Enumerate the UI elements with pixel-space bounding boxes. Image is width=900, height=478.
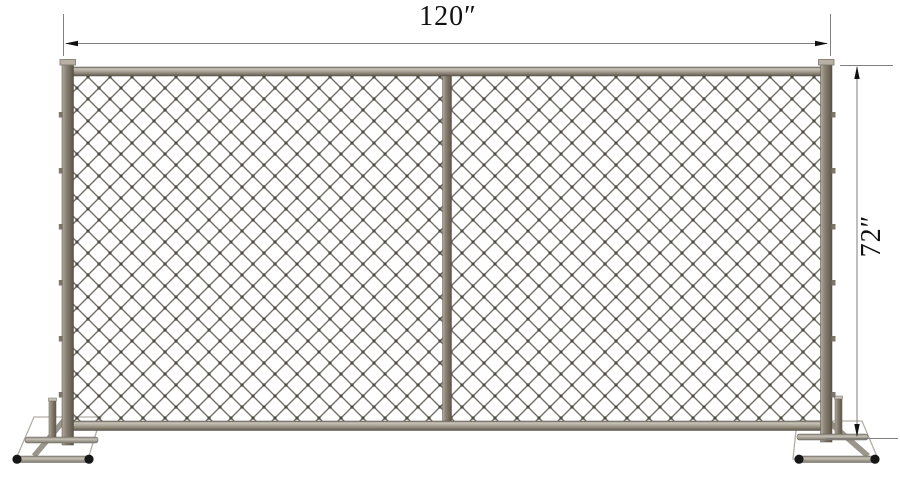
- diagram-svg: [0, 0, 900, 478]
- center-upright: [443, 72, 452, 425]
- fence-diagram: 120″ 72″: [0, 0, 900, 478]
- arrowhead-right: [815, 41, 828, 47]
- wire-tie: [59, 280, 63, 286]
- wire-tie: [832, 336, 836, 342]
- wire-tie: [832, 112, 836, 118]
- stand-stub-pipe: [49, 399, 56, 439]
- fence-panel: [59, 60, 836, 446]
- right-post: [821, 61, 833, 442]
- wire-tie: [832, 280, 836, 286]
- wire-tie: [59, 112, 63, 118]
- wire-tie: [59, 336, 63, 342]
- stand-end-cap: [870, 455, 879, 464]
- stand-stub-cap: [835, 396, 843, 399]
- right-post-cap: [819, 60, 835, 66]
- stand-end-cap: [84, 455, 93, 464]
- arrowhead-up: [854, 66, 859, 79]
- width-dimension-label: 120″: [393, 0, 503, 34]
- bottom-rail: [70, 421, 824, 431]
- stand-end-cap: [12, 455, 21, 464]
- stand-mid-bar: [25, 437, 98, 443]
- arrowhead-left: [65, 41, 78, 47]
- wire-tie: [59, 224, 63, 230]
- stand-stub-cap: [49, 398, 57, 401]
- wire-tie: [59, 168, 63, 174]
- wire-tie: [832, 224, 836, 230]
- height-dimension-label: 72″: [854, 207, 890, 265]
- stand-end-cap: [794, 455, 803, 464]
- wire-tie: [832, 168, 836, 174]
- stand-front-bar: [796, 456, 878, 463]
- stand-front-bar: [14, 456, 92, 463]
- left-post-cap: [60, 60, 76, 66]
- wire-tie: [59, 392, 63, 398]
- top-rail: [70, 67, 824, 76]
- left-post: [62, 61, 74, 445]
- stand-stub-pipe: [835, 397, 842, 436]
- wire-tie: [832, 392, 836, 398]
